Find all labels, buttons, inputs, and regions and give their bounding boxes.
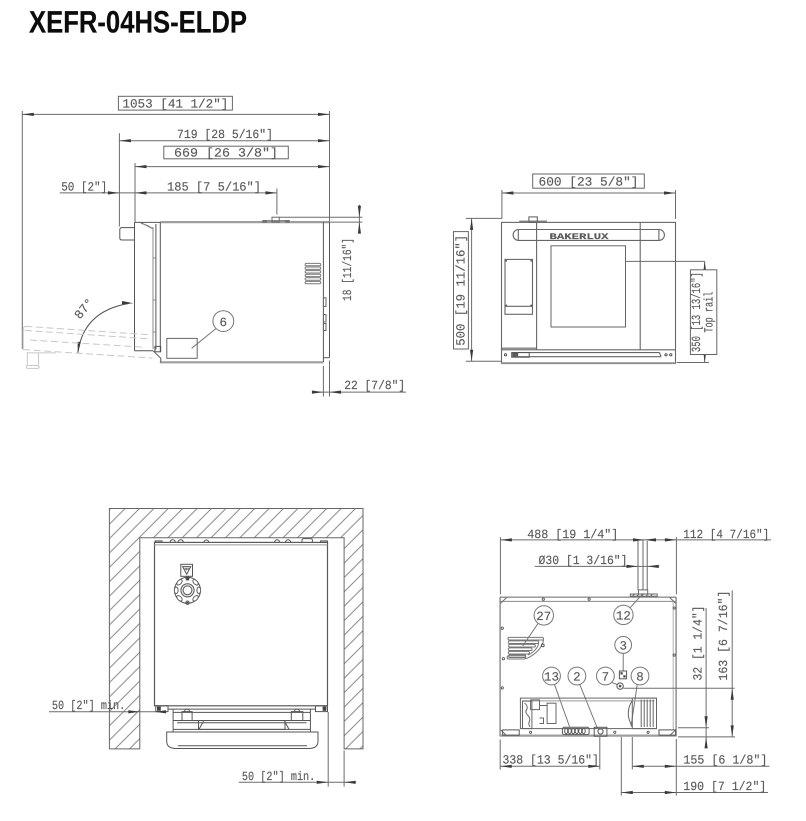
svg-text:13: 13 [544,671,559,685]
svg-text:7: 7 [602,671,610,685]
svg-text:50 [2″] min.: 50 [2″] min. [242,770,315,784]
svg-text:719 [28 5/16″]: 719 [28 5/16″] [177,128,273,142]
svg-text:600 [23 5/8″]: 600 [23 5/8″] [539,175,639,189]
svg-text:1053 [41 1/2″]: 1053 [41 1/2″] [122,98,228,112]
svg-text:3: 3 [619,639,627,653]
svg-text:8: 8 [636,671,644,685]
svg-text:669 [26 3/8″]: 669 [26 3/8″] [174,147,278,161]
svg-text:22 [7/8″]: 22 [7/8″] [344,379,405,393]
svg-text:27: 27 [536,610,551,624]
svg-text:488 [19 1/4″]: 488 [19 1/4″] [527,528,618,542]
svg-text:2: 2 [573,671,581,685]
svg-text:6: 6 [220,316,228,330]
svg-text:163 [6 7/16″]: 163 [6 7/16″] [717,591,731,681]
svg-text:112 [4 7/16″]: 112 [4 7/16″] [683,528,769,542]
svg-text:338 [13 5/16″]: 338 [13 5/16″] [502,754,599,768]
svg-text:50 [2″]: 50 [2″] [61,180,107,194]
svg-text:18 [11/16″]: 18 [11/16″] [341,238,355,301]
svg-text:155 [6 1/8″]: 155 [6 1/8″] [683,754,767,768]
svg-text:Ø30 [1 3/16″]: Ø30 [1 3/16″] [539,554,628,568]
svg-text:32 [1 1/4″]: 32 [1 1/4″] [692,606,706,681]
svg-text:BAKERLUX: BAKERLUX [550,232,610,242]
svg-text:12: 12 [616,610,631,624]
svg-text:500 [19 11/16″]: 500 [19 11/16″] [455,235,469,346]
svg-text:Top rail: Top rail [703,292,717,333]
svg-text:50 [2″] min.: 50 [2″] min. [52,699,125,713]
svg-text:XEFR-04HS-ELDP: XEFR-04HS-ELDP [29,5,247,40]
svg-text:190 [7 1/2″]: 190 [7 1/2″] [683,780,766,794]
svg-text:185 [7 5/16″]: 185 [7 5/16″] [167,180,261,194]
